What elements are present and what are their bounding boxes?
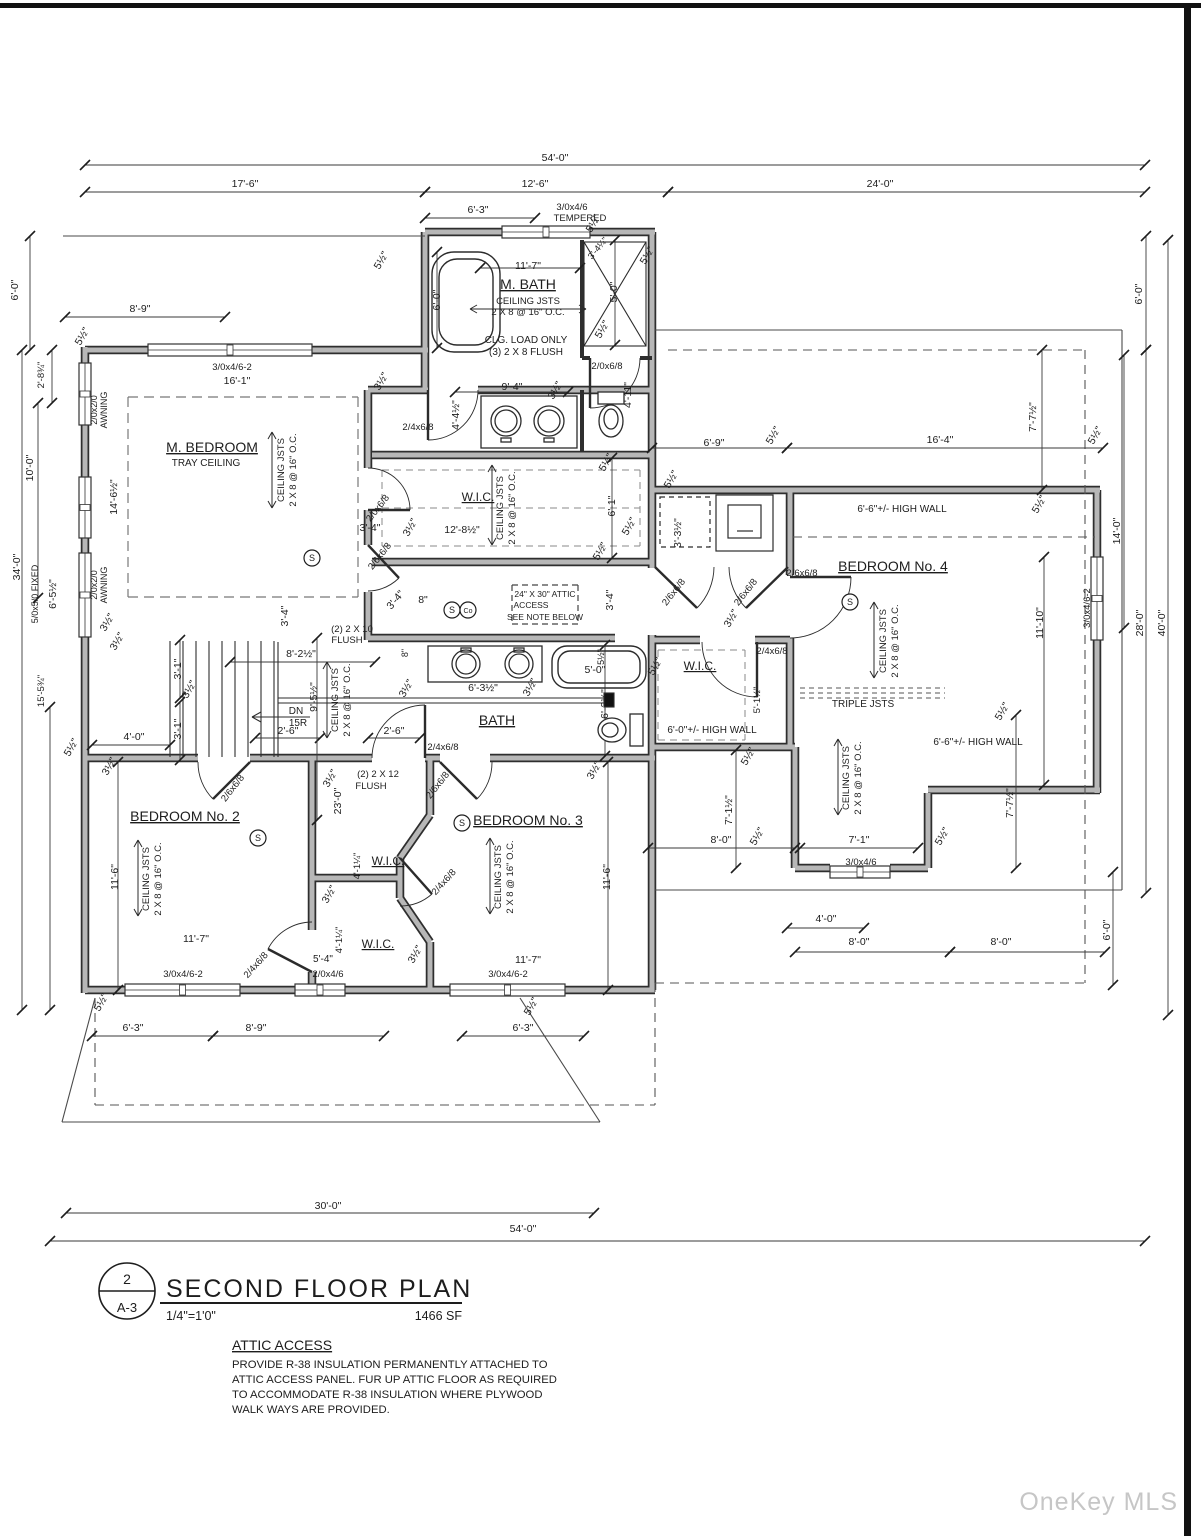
- joist-arrowhead: [470, 305, 477, 309]
- dim-label: 3'-3½": [672, 518, 684, 548]
- dim-label: 2/0x2/0: [89, 395, 99, 425]
- plan-scale: 1/4"=1'0": [166, 1309, 216, 1323]
- dim-label: 16'-1": [224, 375, 251, 387]
- dim-label: 2/0x4/6: [312, 969, 343, 980]
- dim-label: CEILING JSTS: [495, 476, 506, 540]
- dim-label: 5½": [62, 736, 82, 758]
- dim-label: 3'-4¼": [586, 235, 610, 261]
- window-mullion: [80, 505, 90, 511]
- dim-label: 6'-5½": [47, 579, 59, 609]
- roof-line: [62, 998, 95, 1122]
- dim-label: 2/0x6/8: [591, 361, 622, 372]
- dim-label: 8'-0": [991, 936, 1012, 948]
- dim-label: 6'-0": [431, 289, 443, 310]
- joist-arrowhead: [470, 309, 477, 313]
- dim-label: 5½": [372, 249, 392, 271]
- dim-label: 12'-8½": [444, 524, 480, 536]
- dim-label: CEILING JSTS: [841, 746, 852, 810]
- dim-label: 5½": [748, 825, 768, 847]
- joist-arrowhead: [492, 465, 496, 472]
- dim-label: 28'-0": [1134, 609, 1146, 636]
- dim-label: 54'-0": [510, 1223, 537, 1235]
- dim-label: 5½": [73, 325, 93, 347]
- window-mullion: [227, 345, 233, 355]
- dim-label: AWNING: [99, 567, 109, 604]
- dim-label: 11'-7": [183, 933, 209, 945]
- detector-label: S: [309, 553, 315, 563]
- dim-label: 7'-7½": [1027, 402, 1039, 432]
- hall-bath-vanity-sinks: [428, 646, 542, 682]
- joist-arrowhead: [870, 671, 874, 678]
- dim-label: 4'-1¼": [352, 853, 363, 880]
- dim-label: 30'-0": [315, 1200, 342, 1212]
- room-label: BEDROOM No. 3: [473, 812, 583, 828]
- dim-label: 3'-4": [384, 588, 407, 612]
- sheet-number: A-3: [117, 1300, 137, 1315]
- dim-label: 2/6x6/8: [786, 568, 817, 579]
- dim-label: 2/6x6/8: [660, 577, 688, 608]
- dim-label: 5½": [1086, 424, 1106, 446]
- door-swing-arc: [198, 762, 213, 799]
- room-label: BEDROOM No. 4: [838, 558, 948, 574]
- room-label: BATH: [479, 712, 515, 728]
- dim-label: AWNING: [99, 392, 109, 429]
- dim-label: 9'-4": [502, 381, 523, 393]
- dim-label: 8": [400, 649, 410, 657]
- detector-label: S: [847, 597, 853, 607]
- joist-arrowhead: [838, 739, 842, 746]
- dim-label: 4'-1¼": [334, 927, 345, 954]
- dim-label: CEILING JSTS: [330, 668, 341, 732]
- sheet-border-top: [0, 3, 1201, 8]
- dim-label: 10'-0": [24, 454, 36, 481]
- window-mullion: [1092, 596, 1102, 602]
- dim-label: 6'-6"+/- HIGH WALL: [933, 737, 1023, 748]
- dim-label: 5½": [522, 995, 542, 1017]
- dim-label: 2'-6": [384, 725, 405, 737]
- dim-label: 6'-3½": [468, 682, 498, 694]
- dim-label: 2/6x6/8: [732, 577, 760, 608]
- dim-label: 7'-1½": [723, 795, 735, 825]
- dim-label: DN: [289, 706, 303, 717]
- dim-label: 2/4x6/8: [402, 422, 433, 433]
- dim-label: 5½": [593, 318, 613, 340]
- dim-label: 6'-9": [704, 437, 725, 449]
- dim-label: 5½": [620, 515, 640, 537]
- dim-label: 6'-3": [468, 204, 489, 216]
- door-leaf: [400, 858, 432, 894]
- dim-label: 3'-4": [360, 522, 381, 534]
- dim-label: 2 X 8 @ 16" O.C.: [507, 471, 518, 544]
- dim-label: TRAY CEILING: [172, 458, 241, 469]
- detector-label: S: [459, 818, 465, 828]
- dim-label: 3½": [401, 516, 421, 538]
- dim-label: CEILING JSTS: [141, 847, 152, 911]
- dim-label: 2 X 8 @ 16" O.C.: [288, 433, 299, 506]
- window-mullion: [317, 985, 323, 995]
- dim-label: 6'-3": [123, 1022, 144, 1034]
- attic-access-note: ATTIC ACCESS PROVIDE R-38 INSULATION PER…: [232, 1337, 557, 1416]
- dim-label: 3½": [722, 607, 742, 629]
- note-title: ATTIC ACCESS: [232, 1337, 332, 1353]
- dim-label: 3½": [585, 759, 605, 781]
- floor-plan-svg: SSCoSSS54'-0"17'-6"12'-6"24'-0"6'-3"3/0x…: [0, 0, 1201, 1536]
- dim-label: 2 X 8 @ 16" O.C.: [342, 663, 353, 736]
- dim-label: 7'-1": [849, 834, 870, 846]
- dim-label: TRIPLE JSTS: [832, 699, 895, 710]
- dim-label: 3½": [321, 767, 341, 789]
- dim-label: 24'-0": [867, 178, 894, 190]
- dim-label: 3½": [397, 677, 417, 699]
- dim-label: 4'-4½": [450, 400, 462, 430]
- dim-label: ACCESS: [514, 600, 549, 610]
- dim-label: SEE NOTE BELOW: [507, 612, 583, 622]
- sheet-border-right: [1184, 3, 1191, 1536]
- note-line: PROVIDE R-38 INSULATION PERMANENTLY ATTA…: [232, 1359, 548, 1371]
- dim-label: 6'-6"+/- HIGH WALL: [857, 504, 947, 515]
- drawing-sheet: { "title_block": { "number": "2", "sheet…: [0, 0, 1201, 1536]
- window-mullion: [857, 867, 863, 877]
- dim-label: 5'-4": [313, 954, 333, 965]
- room-label: BEDROOM No. 2: [130, 808, 240, 824]
- room-label: W.I.C.: [462, 490, 495, 504]
- room-label: W.I.C.: [372, 854, 405, 868]
- dim-label: 34'-0": [11, 553, 23, 580]
- door-swing-arc: [477, 762, 492, 799]
- dim-label: 3½": [406, 943, 426, 965]
- master-vanity-sinks: [481, 396, 577, 448]
- dim-label: 3'-4": [604, 589, 616, 610]
- dim-label: 7'-7½": [1004, 788, 1016, 818]
- dim-label: 3'-1": [172, 718, 184, 739]
- note-line: TO ACCOMMODATE R-38 INSULATION WHERE PLY…: [232, 1389, 543, 1401]
- joist-arrowhead: [834, 739, 838, 746]
- dim-label: FLUSH: [331, 635, 362, 646]
- joist-arrowhead: [486, 838, 490, 845]
- dim-label: 14'-6½": [108, 479, 120, 515]
- note-line: ATTIC ACCESS PANEL. FUR UP ATTIC FLOOR A…: [232, 1374, 557, 1386]
- dim-label: 3/0x4/6: [556, 202, 587, 213]
- dim-label: 11'-7": [515, 954, 541, 966]
- dim-label: 4'-0": [816, 913, 837, 925]
- room-label: W.I.C.: [362, 937, 395, 951]
- dim-label: 3/0x4/6-2: [163, 969, 203, 980]
- dim-label: 2 X 8 @ 16" O.C.: [153, 842, 164, 915]
- door-swing-arc: [268, 922, 312, 949]
- dim-label: 3½": [320, 883, 340, 905]
- dim-label: 5½": [993, 700, 1013, 722]
- dim-label: 4'-0": [124, 731, 145, 743]
- dim-label: 2 X 8 @ 16" O.C.: [491, 307, 564, 318]
- dim-label: 11'-6": [601, 864, 613, 890]
- dim-label: 8": [418, 594, 428, 606]
- dim-label: 3'-1": [172, 658, 184, 679]
- dim-label: 8'-2½": [286, 648, 316, 660]
- joist-arrowhead: [874, 602, 878, 609]
- joist-arrowhead: [490, 838, 494, 845]
- title-block: 2 A-3 SECOND FLOOR PLAN 1/4"=1'0" 1466 S…: [99, 1263, 472, 1323]
- dim-label: (2) 2 X 12: [357, 769, 399, 780]
- dim-label: 9'-5½": [308, 682, 320, 712]
- dim-label: 6'-0"+/- HIGH WALL: [667, 725, 757, 736]
- dim-label: 11'-10": [1034, 607, 1046, 639]
- plan-area: 1466 SF: [415, 1309, 463, 1323]
- dim-label: FLUSH: [355, 781, 386, 792]
- door-swing-arc: [368, 578, 399, 591]
- joist-arrowhead: [134, 840, 138, 847]
- joist-arrowhead: [323, 662, 327, 669]
- dim-label: 2/4x6/8: [242, 950, 271, 981]
- dim-label: 3/0x4/6-2: [1082, 588, 1093, 628]
- dim-label: 5'-1½": [752, 687, 763, 714]
- dim-label: 6'-1": [606, 495, 618, 516]
- detector-label: S: [449, 605, 455, 615]
- dim-label: 3/0x4/6: [845, 857, 876, 868]
- door-leaf: [268, 949, 312, 972]
- dim-label: 2 X 8 @ 16" O.C.: [505, 840, 516, 913]
- dim-label: 11'-6": [109, 864, 121, 890]
- joist-arrowhead: [138, 840, 142, 847]
- dim-label: 8'-0": [849, 936, 870, 948]
- dim-label: 5½": [933, 825, 953, 847]
- dim-label: CEILING JSTS: [493, 845, 504, 909]
- dim-label: 6'-0": [1101, 919, 1113, 940]
- dim-label: (2) 2 X 10: [331, 624, 373, 635]
- dim-label: 6'-0": [1133, 283, 1145, 304]
- dim-label: 8'-0": [711, 834, 732, 846]
- dim-label: 5½": [764, 424, 784, 446]
- dim-label: 8'-9": [246, 1022, 267, 1034]
- dim-label: 5½": [1030, 493, 1050, 515]
- wall-core: [400, 898, 430, 942]
- note-line: WALK WAYS ARE PROVIDED.: [232, 1404, 390, 1416]
- plan-title: SECOND FLOOR PLAN: [166, 1275, 472, 1303]
- dim-label: 3/0x4/6-2: [488, 969, 528, 980]
- dim-label: 3½": [108, 630, 128, 652]
- detail-number: 2: [123, 1271, 131, 1287]
- master-toilet: [598, 392, 624, 437]
- dim-label: CEILING JSTS: [496, 296, 560, 307]
- dim-label: 3½": [521, 676, 541, 698]
- dim-label: 40'-0": [1156, 609, 1168, 636]
- joist-arrowhead: [488, 538, 492, 545]
- dim-label: 2'-6": [278, 725, 299, 737]
- detector-label: S: [255, 833, 261, 843]
- dim-label: 2 X 8 @ 16" O.C.: [853, 741, 864, 814]
- dim-label: (3) 2 X 8 FLUSH: [489, 347, 563, 358]
- door-swing-arc: [790, 577, 851, 638]
- dim-label: 15'-5¾": [36, 675, 47, 707]
- dim-label: 6'-0": [9, 279, 21, 300]
- dim-label: 3½": [546, 379, 566, 401]
- dim-label: 6'-3": [513, 1022, 534, 1034]
- window-mullion: [543, 227, 549, 237]
- joist-arrowhead: [870, 602, 874, 609]
- dim-label: 16'-4": [927, 434, 954, 446]
- dim-label: 2/0x2/0: [89, 570, 99, 600]
- door-swing-arc: [697, 567, 714, 608]
- dim-label: 24" X 30" ATTIC: [514, 589, 575, 599]
- joist-arrowhead: [268, 432, 272, 439]
- dim-label: 3/0x4/6-2: [212, 362, 252, 373]
- dim-label: 8'-9": [130, 303, 151, 315]
- joist-arrowhead: [488, 465, 492, 472]
- dim-label: CEILING JSTS: [878, 609, 889, 673]
- dim-label: 14'-0": [1111, 517, 1123, 544]
- dim-label: 11'-7": [515, 260, 541, 272]
- dim-label: CEILING JSTS: [276, 438, 287, 502]
- window-mullion: [505, 985, 511, 995]
- detector-label: Co: [464, 608, 473, 615]
- joist-arrowhead: [327, 662, 331, 669]
- dim-label: 3'-4": [279, 605, 291, 626]
- dim-label: 2/4x6/8: [430, 867, 459, 898]
- room-label: W.I.C.: [684, 659, 717, 673]
- joist-arrowhead: [486, 907, 490, 914]
- watermark: OneKey MLS: [1019, 1488, 1178, 1516]
- room-label: M. BEDROOM: [166, 439, 258, 455]
- dim-label: 2'-8¾": [36, 362, 47, 389]
- dim-label: 2/4x6/8: [756, 646, 787, 657]
- joist-arrowhead: [134, 909, 138, 916]
- joist-arrowhead: [834, 808, 838, 815]
- window-mullion: [180, 985, 186, 995]
- dim-label: 5½": [92, 991, 112, 1013]
- joist-arrowhead: [272, 432, 276, 439]
- dim-label: 17'-6": [232, 178, 259, 190]
- dim-label: 3½": [98, 611, 118, 633]
- dim-label: 2/4x6/8: [427, 742, 458, 753]
- dim-label: 5/0x5/0 FIXED: [30, 564, 40, 623]
- dim-label: 54'-0": [542, 152, 569, 164]
- dim-label: 2 X 8 @ 16" O.C.: [890, 604, 901, 677]
- dim-label: 12'-6": [522, 178, 549, 190]
- wall-core: [400, 815, 430, 858]
- dim-label: 23'-0": [332, 787, 344, 814]
- room-label: M. BATH: [500, 276, 556, 292]
- joist-arrowhead: [268, 501, 272, 508]
